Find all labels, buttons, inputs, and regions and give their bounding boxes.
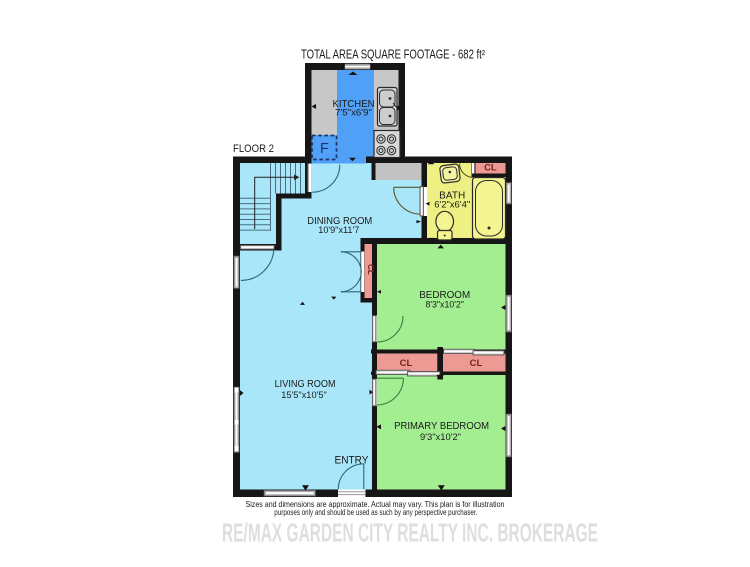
svg-text:CL: CL	[366, 264, 375, 275]
svg-text:purposes only and should be us: purposes only and should be used as such…	[274, 507, 477, 517]
svg-text:TOTAL AREA SQUARE FOOTAGE - 68: TOTAL AREA SQUARE FOOTAGE - 682 ft²	[301, 48, 485, 62]
svg-text:10'9"x11'7: 10'9"x11'7	[318, 225, 359, 236]
svg-text:LIVING ROOM: LIVING ROOM	[275, 379, 336, 390]
svg-text:6'2"x6'4": 6'2"x6'4"	[434, 200, 470, 211]
svg-text:CL: CL	[470, 358, 483, 369]
svg-text:9'3"x10'2": 9'3"x10'2"	[420, 432, 461, 443]
svg-text:F: F	[320, 141, 329, 157]
svg-text:RE/MAX GARDEN CITY REALTY INC.: RE/MAX GARDEN CITY REALTY INC. BROKERAGE	[222, 520, 598, 548]
svg-text:7'5"x6'9": 7'5"x6'9"	[335, 108, 372, 119]
svg-text:CL: CL	[484, 163, 497, 174]
svg-text:ENTRY: ENTRY	[335, 454, 370, 466]
svg-text:8'3"x10'2": 8'3"x10'2"	[425, 299, 464, 310]
svg-text:15'5"x10'5": 15'5"x10'5"	[281, 390, 327, 401]
svg-text:CL: CL	[400, 358, 413, 369]
svg-text:FLOOR 2: FLOOR 2	[233, 143, 274, 155]
svg-text:PRIMARY BEDROOM: PRIMARY BEDROOM	[394, 421, 489, 432]
